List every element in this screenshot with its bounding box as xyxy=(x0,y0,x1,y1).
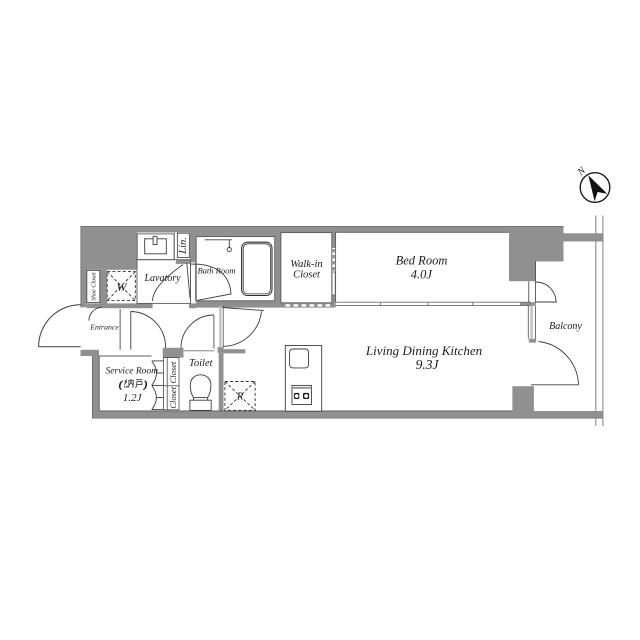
svg-text:Bed Room: Bed Room xyxy=(396,254,448,268)
svg-text:Closet: Closet xyxy=(293,269,321,280)
svg-text:Closet: Closet xyxy=(168,361,178,383)
svg-text:Entrance: Entrance xyxy=(89,323,119,332)
svg-text:Closet: Closet xyxy=(168,386,178,408)
svg-text:R: R xyxy=(236,392,243,403)
svg-text:1.2J: 1.2J xyxy=(123,392,143,404)
svg-text:Shoe Closet: Shoe Closet xyxy=(91,272,97,301)
svg-text:): ) xyxy=(143,380,147,390)
svg-text:Service Room: Service Room xyxy=(106,367,159,377)
svg-text:Toilet: Toilet xyxy=(189,358,214,369)
svg-text:Living Dining Kitchen: Living Dining Kitchen xyxy=(365,343,482,358)
svg-text:W: W xyxy=(117,280,128,294)
svg-text:Walk-in: Walk-in xyxy=(290,259,322,270)
svg-text:4.0J: 4.0J xyxy=(411,267,434,281)
svg-text:9.3J: 9.3J xyxy=(416,357,440,372)
svg-text:Balcony: Balcony xyxy=(549,321,582,332)
svg-text:Bath Room: Bath Room xyxy=(197,265,235,275)
svg-text:Lin.: Lin. xyxy=(178,237,189,255)
